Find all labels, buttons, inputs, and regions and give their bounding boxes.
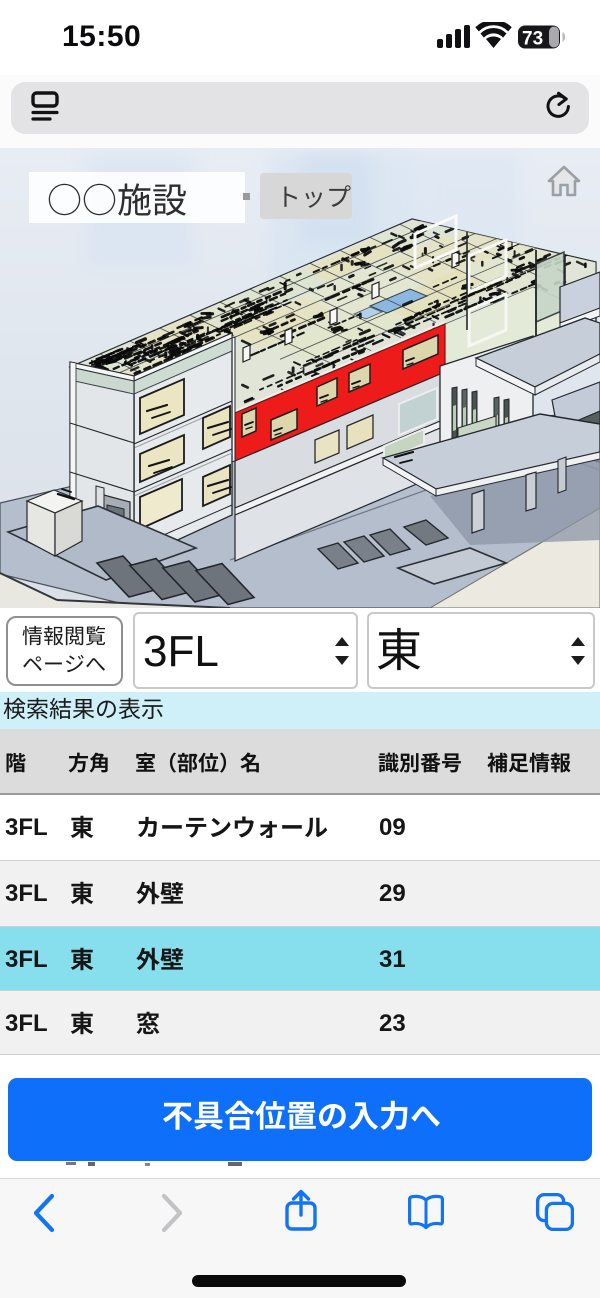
svg-text:73: 73 xyxy=(522,29,543,50)
